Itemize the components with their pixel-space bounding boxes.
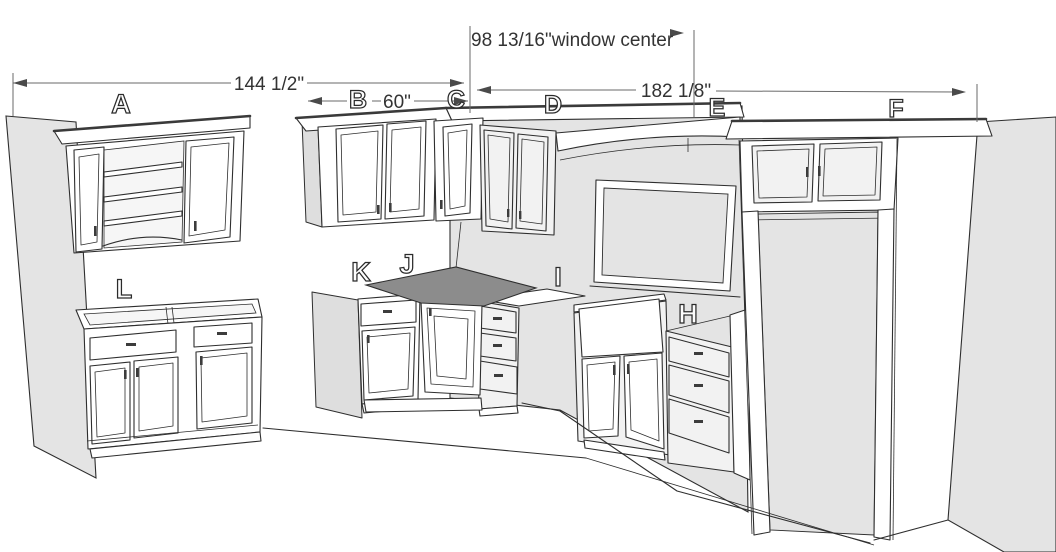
cabinet-label-k: K: [351, 257, 371, 287]
drawing-canvas: 144 1/2" 60" 182 1/8" 98 13/16"window ce…: [0, 0, 1056, 552]
sink-base-cabinet-h: [574, 294, 670, 460]
door-handle: [194, 221, 197, 231]
cabinet-label-c: C: [447, 86, 465, 114]
cabinet-label-e: E: [709, 94, 726, 122]
corner-upper-cabinet-c: [434, 118, 483, 221]
cabinet-label-d: D: [544, 91, 562, 119]
dimension-cabinet-b-label: 60": [383, 92, 411, 113]
upper-cabinet-a: [54, 116, 250, 253]
cabinet-label-i: I: [554, 262, 562, 292]
dimension-window-center-label: 98 13/16"window center: [471, 30, 674, 51]
apron-sink-opening: [579, 299, 663, 357]
cabinet-label-l: L: [116, 274, 133, 304]
cabinet-label-j: J: [399, 249, 414, 279]
dimension-right-run-label: 182 1/8": [641, 81, 711, 102]
arrow-left: [13, 79, 27, 87]
toe-kick: [364, 398, 482, 412]
window: [590, 180, 740, 297]
door-left: [74, 147, 104, 252]
base-cabinet-l: [76, 299, 262, 458]
cabinet-label-f: F: [888, 95, 903, 123]
cabinet-label-a: A: [111, 89, 131, 119]
door-handle: [94, 226, 97, 236]
upper-cabinet-d: [480, 125, 556, 235]
cabinet-label-h: H: [678, 299, 698, 329]
right-wall-far: [948, 117, 1056, 552]
door: [443, 124, 472, 216]
door: [818, 142, 882, 201]
dimension-left-run-label: 144 1/2": [234, 74, 304, 95]
window-glass: [602, 188, 728, 283]
cabinet-label-b: B: [349, 86, 367, 114]
right-tall-panel: [874, 209, 894, 540]
cavity-back-wall: [758, 212, 878, 535]
upper-cabinet-b: [296, 108, 452, 227]
door: [752, 144, 814, 203]
drawer: [480, 361, 517, 394]
kitchen-3d-drawing: 144 1/2" 60" 182 1/8" 98 13/16"window ce…: [0, 0, 1056, 552]
